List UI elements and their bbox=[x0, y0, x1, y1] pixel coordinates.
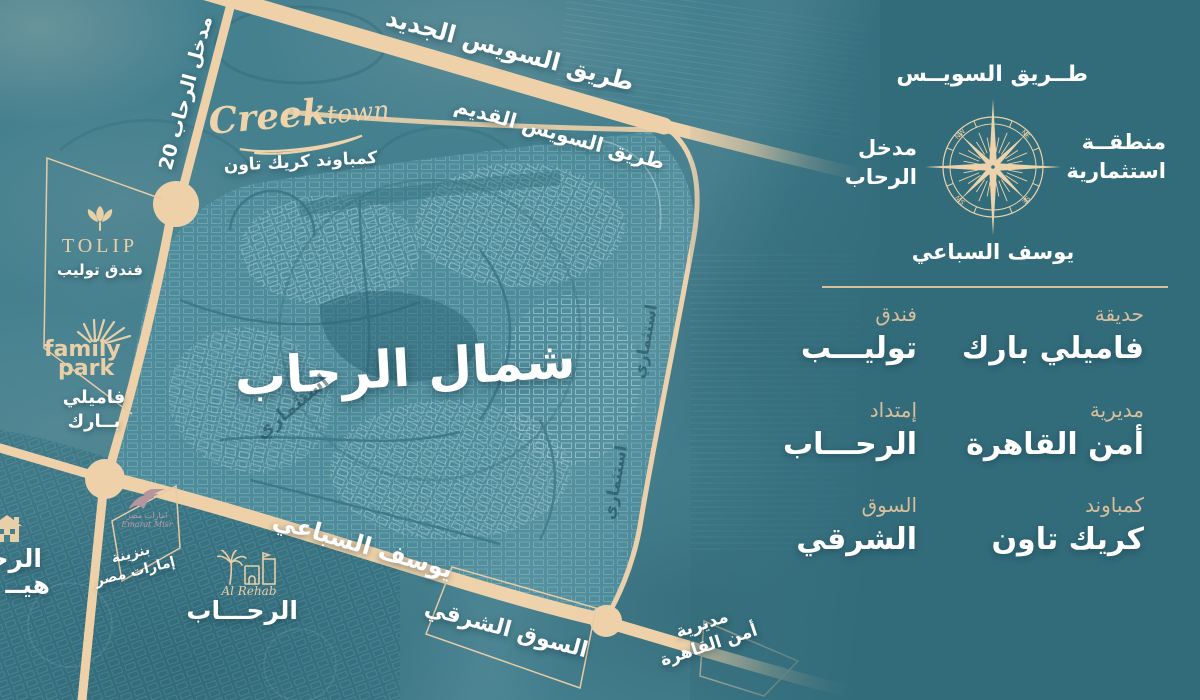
family-park-arabic1: فاميلي bbox=[54, 386, 134, 410]
compass-label-east-line2: استثمارية bbox=[1070, 157, 1166, 186]
investment-watermark-east-1: استثماري bbox=[627, 291, 663, 393]
compass-label-north: طــريق السويــس bbox=[898, 62, 1088, 87]
family-park-arabic-label: فاميلي بــارك bbox=[54, 386, 134, 434]
legend-item-cairo-security: مديرية أمن القاهرة bbox=[940, 395, 1144, 465]
compass-label-east: منطقــة استثمارية bbox=[1070, 128, 1166, 186]
al-rehab-logo: Al Rehab bbox=[216, 550, 282, 598]
map-area: طريق السويس الجديد طريق السويس القديم مد… bbox=[0, 0, 880, 700]
compass-label-east-line1: منطقــة bbox=[1070, 128, 1166, 157]
road-label-yousef-sebai: يوسف السباعي bbox=[268, 505, 458, 584]
tolip-arabic-label: فندق توليب bbox=[50, 261, 150, 279]
creektown-script-creek: Creek bbox=[207, 91, 329, 143]
road-label-new-suez: طريق السويس الجديد bbox=[442, 19, 638, 97]
map-poster: طريق السويس الجديد طريق السويس القديم مد… bbox=[0, 0, 1200, 700]
al-rehab-label: الرحـــاب bbox=[198, 596, 298, 625]
emarat-misr-logo: امارات مصر Emarat Misr bbox=[118, 489, 176, 529]
compass-label-south: يوسف السباعي bbox=[898, 240, 1088, 264]
legend-item-creek-town: كمباوند كريك تاون bbox=[940, 490, 1144, 560]
eastern-market-label: السوق الشرقي bbox=[429, 598, 590, 664]
region-title: شمال الرحاب bbox=[219, 330, 592, 408]
tolip-wordmark: TOLIP bbox=[50, 235, 150, 258]
creektown-script-town: town bbox=[326, 95, 391, 129]
legend-category: حديقة bbox=[940, 299, 1144, 329]
legend-name: كريك تاون bbox=[940, 520, 1144, 560]
compass-ordinal-nw: NW bbox=[953, 127, 967, 141]
palm-tree-buildings-icon bbox=[217, 550, 281, 586]
creektown-script: Creektown bbox=[203, 88, 396, 147]
compass-ordinal-sw: SW bbox=[953, 193, 967, 207]
legend-name: فاميلي بارك bbox=[940, 329, 1144, 369]
emarat-latin-label: Emarat Misr bbox=[118, 520, 176, 529]
emarat-arabic-label: امارات مصر bbox=[118, 511, 176, 520]
family-park-logo: family park فاميلي بــارك bbox=[44, 316, 154, 434]
gas-station-label: بنزينة إمارات مصر bbox=[85, 535, 181, 592]
house-icon bbox=[0, 514, 26, 544]
map-labels-layer: طريق السويس الجديد طريق السويس القديم مد… bbox=[0, 0, 880, 700]
family-park-wordmark: family park bbox=[44, 340, 154, 378]
family-park-arabic2: بــارك bbox=[54, 410, 134, 434]
road-label-old-suez: طريق السويس القديم bbox=[468, 98, 667, 175]
legend-category: مديرية bbox=[940, 395, 1144, 425]
compass-rose-icon: NW NE SE SW bbox=[913, 87, 1073, 247]
compass-ordinal-ne: NE bbox=[1020, 128, 1032, 140]
family-park-word2: park bbox=[58, 359, 154, 378]
edge-neighborhood-line2: هيــ bbox=[0, 570, 50, 599]
legend-category: كمباوند bbox=[940, 490, 1144, 520]
bird-swoosh-icon bbox=[127, 489, 167, 511]
investment-watermark-east-2: استثماري bbox=[597, 432, 633, 534]
compass-ordinal-se: SE bbox=[1020, 194, 1031, 205]
tolip-logo: TOLIP فندق توليب bbox=[50, 202, 150, 279]
edge-neighborhood-line1: الرحـ bbox=[0, 544, 42, 573]
legend-item-family-park: حديقة فاميلي بارك bbox=[940, 299, 1144, 369]
cairo-security-label: مديرية أمن القاهرة bbox=[644, 596, 767, 673]
palm-frond-icon bbox=[74, 314, 134, 344]
tulip-icon bbox=[82, 202, 118, 234]
legend-name: أمن القاهرة bbox=[940, 425, 1144, 465]
